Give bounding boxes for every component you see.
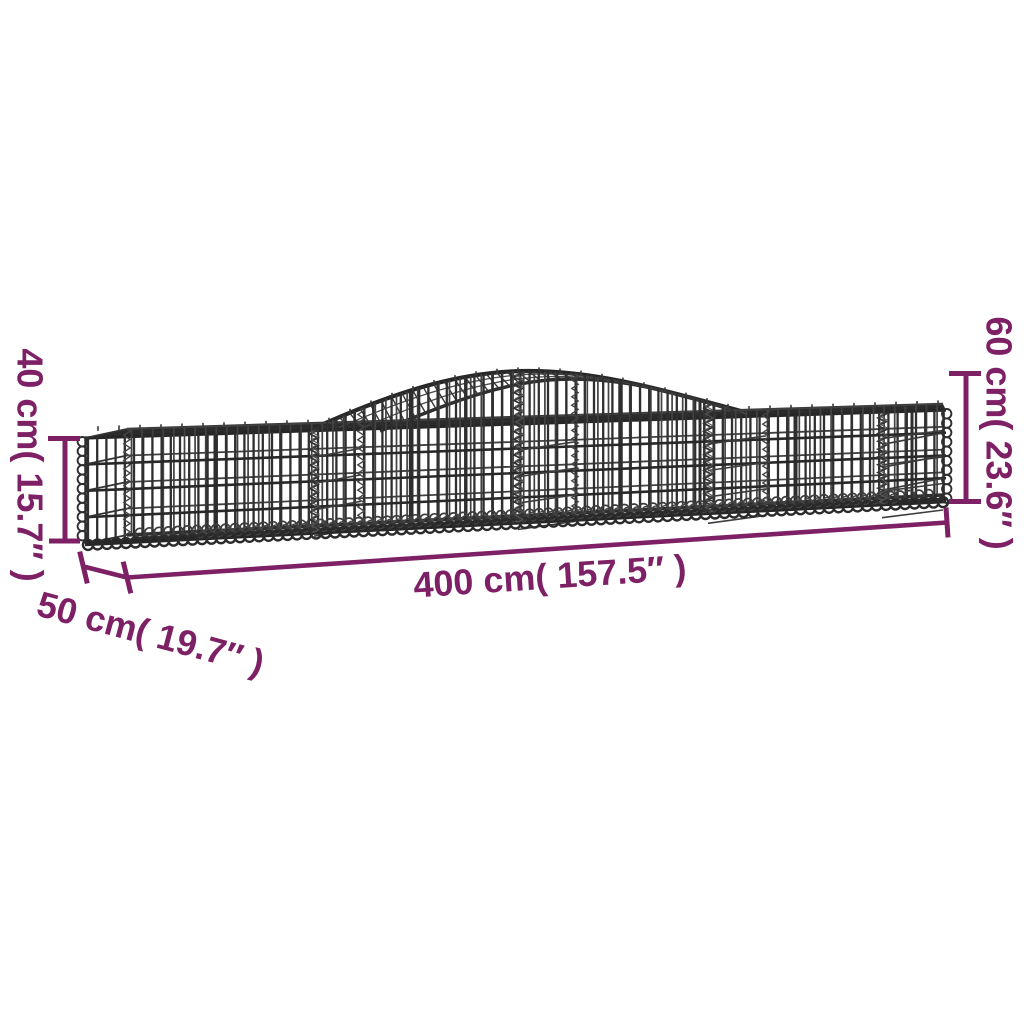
svg-text:60 cm( 23.6″ ): 60 cm( 23.6″ ) <box>978 316 1019 549</box>
svg-text:40 cm( 15.7″ ): 40 cm( 15.7″ ) <box>9 348 50 581</box>
svg-text:50 cm( 19.7″ ): 50 cm( 19.7″ ) <box>33 583 269 683</box>
